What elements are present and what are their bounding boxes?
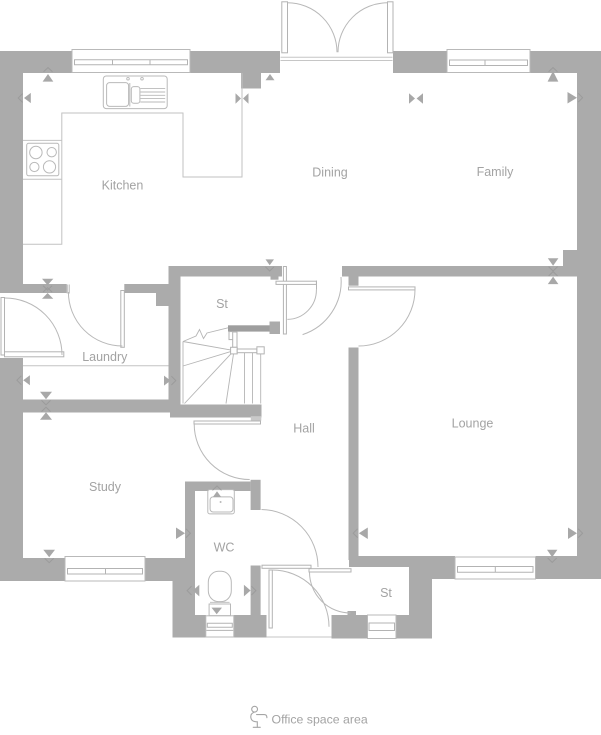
svg-text:Kitchen: Kitchen bbox=[102, 179, 144, 193]
svg-text:Laundry: Laundry bbox=[82, 350, 128, 364]
svg-text:St: St bbox=[216, 297, 228, 311]
svg-text:Family: Family bbox=[477, 165, 515, 179]
svg-text:Hall: Hall bbox=[293, 422, 315, 436]
svg-text:Lounge: Lounge bbox=[452, 417, 494, 431]
svg-text:Office space area: Office space area bbox=[272, 713, 368, 727]
svg-text:WC: WC bbox=[214, 541, 235, 555]
svg-text:St: St bbox=[380, 586, 392, 600]
svg-text:Dining: Dining bbox=[312, 166, 347, 180]
svg-text:Study: Study bbox=[89, 480, 122, 494]
